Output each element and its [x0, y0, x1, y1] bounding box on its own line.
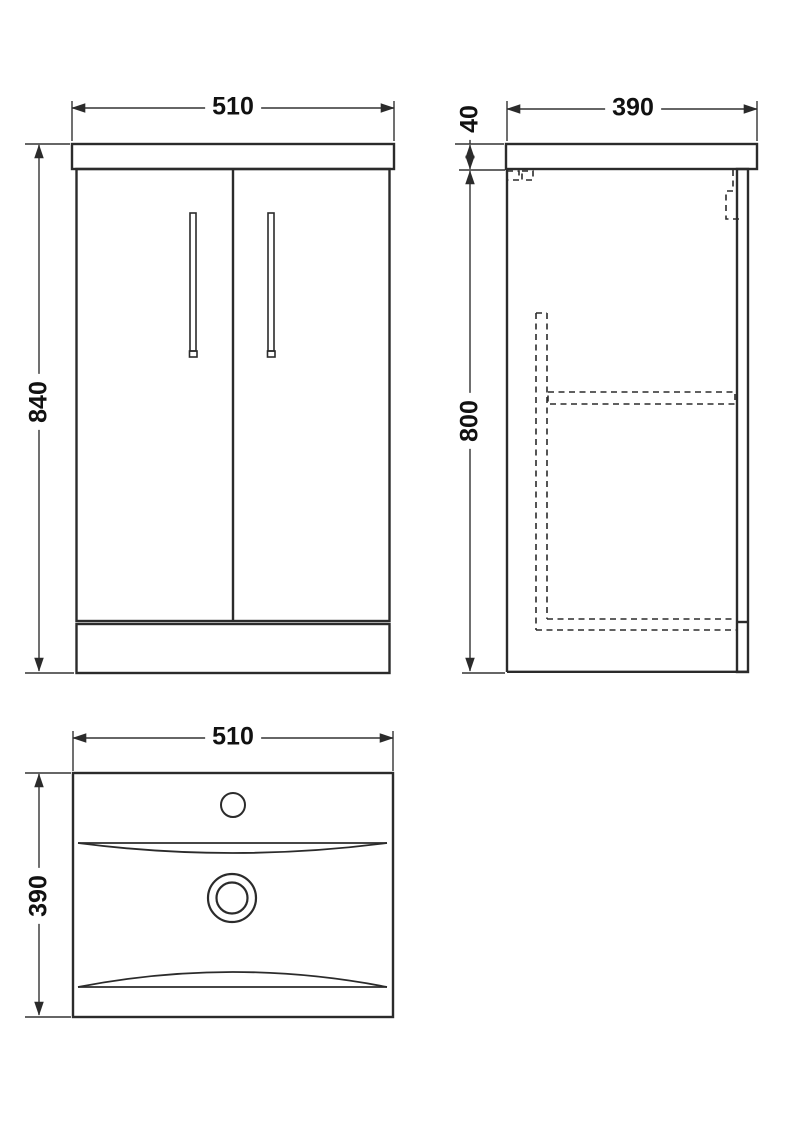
front-countertop — [72, 144, 394, 169]
side-door-panel — [737, 169, 748, 672]
front-height-dim-label: 840 — [27, 374, 52, 430]
plan-view — [73, 773, 393, 1017]
side-depth-dim-label: 390 — [605, 96, 661, 121]
plan-width-dim-label: 510 — [205, 725, 261, 750]
side-counter-thickness-dim-label: 40 — [458, 98, 483, 140]
right-door-handle-icon — [268, 213, 274, 351]
plan-basin-back-curve — [78, 843, 387, 853]
waste-outer-icon — [208, 874, 256, 922]
plan-depth-dim-label: 390 — [27, 868, 52, 924]
plan-basin-front-curve — [78, 972, 387, 987]
waste-inner-icon — [217, 883, 248, 914]
side-view-dimensions — [455, 101, 757, 673]
front-plinth — [77, 624, 390, 673]
side-countertop — [506, 144, 757, 169]
side-hinge-plate-left-a — [507, 171, 519, 180]
front-width-dim-label: 510 — [205, 95, 261, 120]
left-door-handle-foot — [190, 351, 198, 357]
tap-hole-icon — [221, 793, 245, 817]
left-door-handle-icon — [190, 213, 196, 351]
right-door-handle-foot — [268, 351, 276, 357]
vanity-unit-drawing — [0, 0, 800, 1132]
front-view — [72, 144, 394, 673]
front-view-dimensions — [25, 101, 394, 673]
side-height-dim-label: 800 — [458, 393, 483, 449]
side-hinge-plate-left-b — [522, 171, 533, 180]
technical-drawing-page: 510 840 390 40 800 510 390 — [0, 0, 800, 1132]
side-view — [506, 144, 757, 672]
side-shelf-hidden — [548, 392, 735, 404]
